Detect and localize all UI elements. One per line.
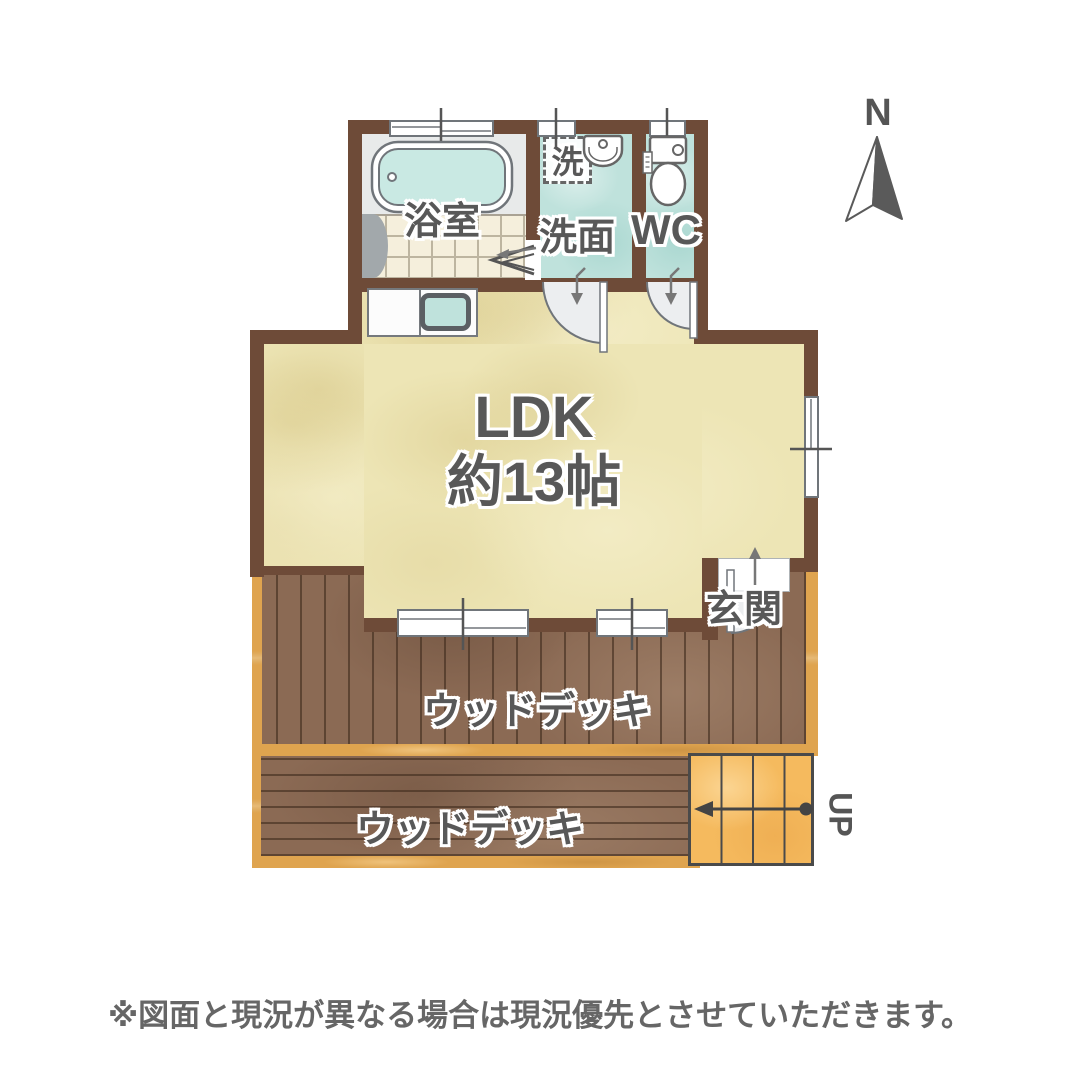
stairs [688,753,814,866]
wall-ldk-left [250,330,264,577]
wall-ldk-bottom [364,618,702,632]
north-label: N [858,92,898,135]
stairs-up-label: UP [822,791,859,839]
deck-lower-label: ウッドデッキ [320,798,620,853]
wall-sanitary-left [348,120,362,344]
bath-label: 浴室 [372,190,512,245]
wall-sanitary-top [348,120,708,134]
deck-lower-bottom-trim [252,856,700,868]
kitchen-counter [367,288,478,337]
washing-machine-box: 洗 [543,136,592,184]
entrance-label: 玄関 [674,578,814,633]
deck-upper-label: ウッドデッキ [387,680,687,735]
wall-ldk-deck-edge [250,566,364,575]
wall-ldk-right [804,330,818,572]
ldk-label-line1: LDK [334,386,734,451]
floor-plan-canvas: 洗 [0,0,1080,1080]
laundry-label: 洗 [551,137,583,183]
deck-upper-left-trim [252,572,262,744]
disclaimer-text: ※図面と現況が異なる場合は現況優先とさせていただきます。 [0,990,1080,1035]
north-arrow-icon [846,137,902,221]
wc-label: WC [596,206,736,254]
wall-ldk-top-right [700,330,818,344]
deck-lower-left-trim [252,756,261,856]
ldk-label-line2: 約13帖 [334,451,734,514]
wall-ldk-top-left [250,330,362,344]
ldk-label: LDK 約13帖 [334,386,734,514]
kitchen-sink-icon [420,293,471,331]
